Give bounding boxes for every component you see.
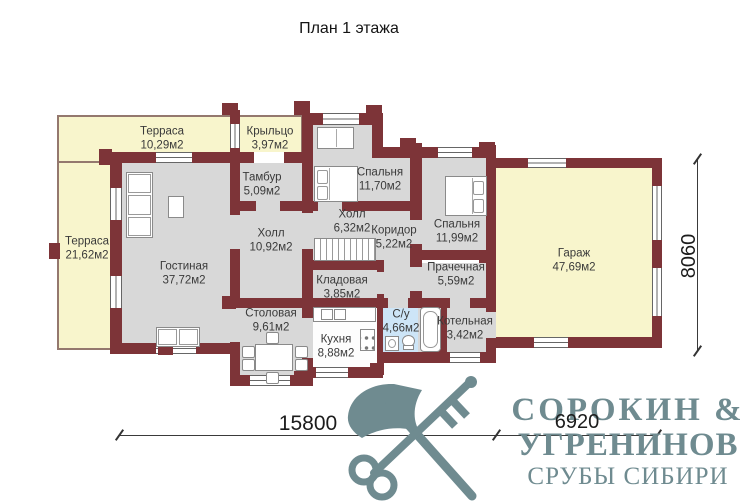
wall [372,113,383,158]
log-end-stub [294,101,310,115]
window [156,152,192,163]
dimension-value-height: 8060 [678,226,698,286]
log-end-stub [222,103,238,115]
window [528,158,566,168]
room-label-garage: Гараж47,69м2 [552,247,595,276]
wardrobe [317,127,354,149]
room-label-laundry: Прачечная5,59м2 [427,261,485,290]
coffee-table [168,196,184,218]
bed [445,176,487,216]
room-label-bedroom-1: Спальня11,70м2 [357,166,403,195]
chair [266,372,279,384]
door-opening [256,201,280,211]
door-opening [254,152,284,163]
axe-and-key-icon [332,372,518,502]
room-label-dining-room: Столовая9,61м2 [245,307,296,336]
door-opening [230,308,240,342]
room-label-hall-stairs: Холл6,32м2 [334,208,371,237]
room-label-pantry: Кладовая3,85м2 [316,274,368,303]
window [450,352,480,363]
kitchen-sink [321,309,333,320]
window [323,113,359,125]
kitchen-sink [334,309,346,320]
room-label-porch: Крыльцо3,97м2 [247,125,294,154]
log-end-stub [366,105,382,115]
room-label-hall-main: Холл10,92м2 [249,227,292,256]
log-end-stub [400,138,416,149]
log-end-stub [49,243,60,259]
room-label-bedroom-2: Спальня11,99м2 [434,218,480,247]
wall [486,158,662,168]
loveseat [156,327,200,347]
room-label-terrace-top: Терраса10,29м2 [140,125,184,154]
wall [302,113,313,211]
room-label-terrace-left: Терраса21,62м2 [65,235,109,264]
log-end-stub [99,149,112,165]
room-label-living-room: Гостиная37,72м2 [160,260,208,289]
chair [295,359,308,371]
window [230,124,240,148]
window [438,147,472,158]
dining-table [255,344,293,371]
door-opening [410,267,422,291]
window [110,188,122,220]
door-opening [230,215,240,249]
door-opening [377,272,384,294]
wall [110,152,122,354]
door-opening [388,298,408,308]
room-label-boiler-room: Котельная3,42м2 [437,315,493,344]
door-opening [450,298,470,308]
stove [360,329,375,351]
wall [230,152,240,386]
dimension-value-total-width: 15800 [258,412,358,436]
page-title: План 1 этажа [249,20,449,38]
log-end-stub [294,371,310,384]
window [652,186,662,240]
dimension-value-garage-width: 6920 [537,411,617,434]
washbasin [385,336,399,351]
wall [303,260,383,270]
log-end-stub [479,142,495,153]
dimension-tick [693,345,702,357]
chair [295,346,308,358]
window [534,337,568,348]
staircase [314,238,376,261]
wall [486,337,662,348]
toilet-tank [403,345,414,350]
logo-tagline: СРУБЫ СИБИРИ [505,463,751,491]
bed [314,166,358,202]
window [110,276,122,308]
room-label-bathroom: С/у4,66м2 [383,308,420,337]
room-label-tambour: Тамбур5,09м2 [242,171,281,200]
door-opening [302,213,313,249]
log-end-stub [222,296,236,309]
room-label-corridor: Коридор5,22м2 [371,224,416,253]
floor-plan-page: План 1 этажа [0,0,753,502]
window [652,268,662,316]
chair [242,346,255,358]
sofa [126,172,153,238]
chair [242,359,255,371]
room-label-kitchen: Кухня8,88м2 [318,333,355,362]
